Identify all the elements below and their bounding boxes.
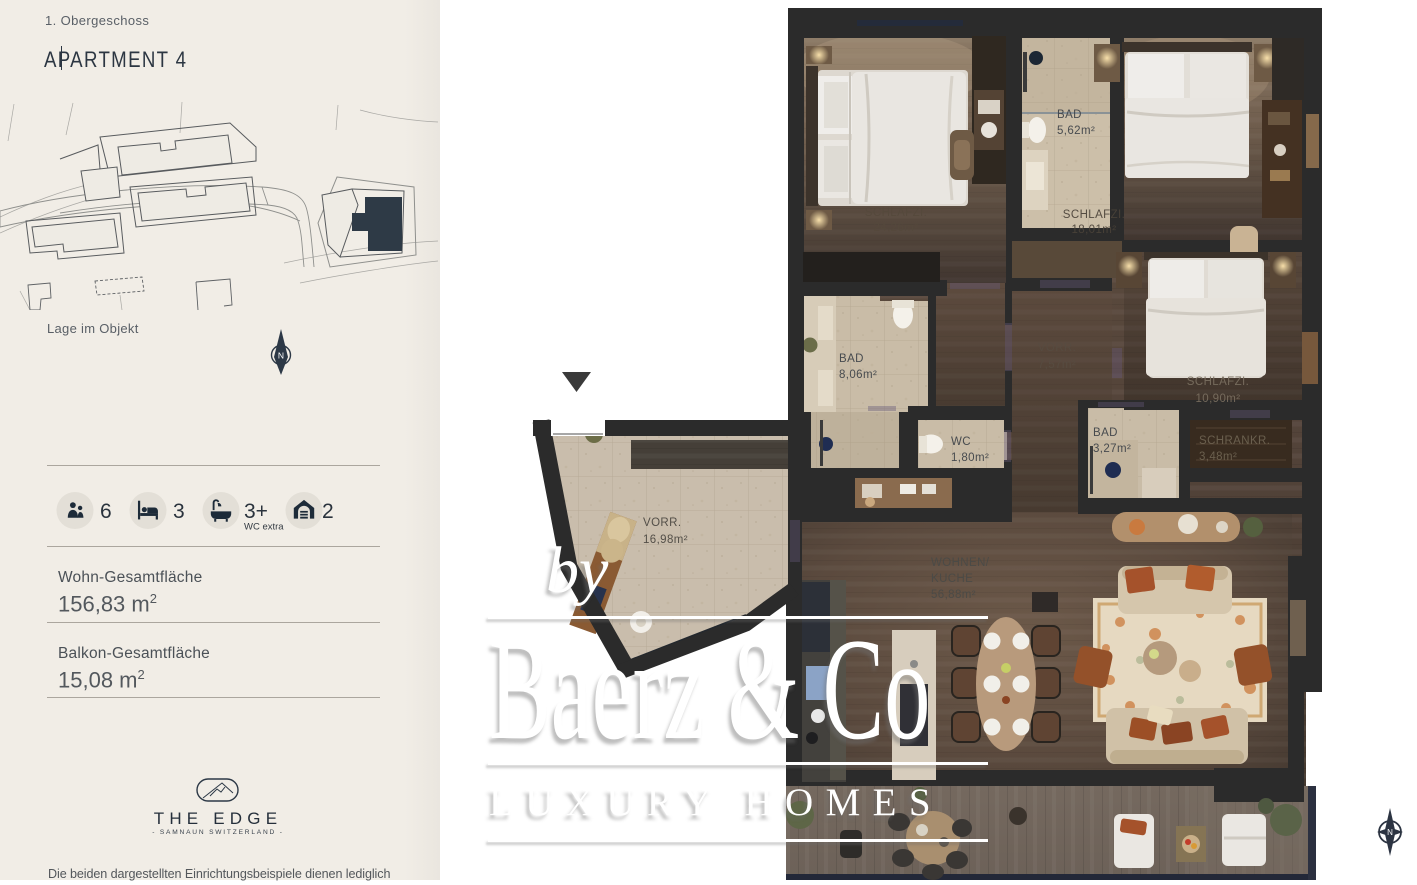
svg-text:5,62m²: 5,62m²	[1057, 125, 1095, 137]
svg-text:BAD: BAD	[1093, 427, 1118, 439]
svg-text:SCHLAFZI.: SCHLAFZI.	[865, 207, 927, 219]
svg-text:N: N	[278, 351, 284, 361]
svg-text:24,26m²: 24,26m²	[874, 222, 919, 234]
svg-text:N: N	[1387, 828, 1393, 837]
svg-text:3: 3	[173, 500, 185, 523]
svg-text:THE EDGE: THE EDGE	[154, 809, 283, 828]
svg-text:3,48m²: 3,48m²	[1199, 451, 1237, 463]
svg-text:SCHLAFZI.: SCHLAFZI.	[1187, 376, 1249, 388]
svg-text:SCHRANKR.: SCHRANKR.	[1199, 435, 1270, 447]
svg-text:VORR.: VORR.	[1038, 342, 1076, 354]
svg-text:10,90m²: 10,90m²	[1196, 393, 1241, 405]
svg-text:6: 6	[100, 500, 112, 523]
svg-text:WOHNEN/: WOHNEN/	[931, 557, 990, 569]
svg-text:WC extra: WC extra	[244, 522, 284, 533]
svg-text:WC: WC	[951, 436, 971, 448]
svg-text:3,27m²: 3,27m²	[1093, 443, 1131, 455]
svg-text:VORR.: VORR.	[643, 517, 681, 529]
svg-text:1,80m²: 1,80m²	[951, 452, 989, 464]
svg-text:BAD: BAD	[839, 353, 864, 365]
svg-text:16,98m²: 16,98m²	[643, 534, 688, 546]
svg-text:SCHLAFZI.: SCHLAFZI.	[1063, 209, 1125, 221]
svg-text:56,88m²: 56,88m²	[931, 589, 976, 601]
svg-text:BAD: BAD	[1057, 109, 1082, 121]
svg-text:- SAMNAUN SWITZERLAND -: - SAMNAUN SWITZERLAND -	[152, 829, 284, 836]
svg-text:KÜCHE: KÜCHE	[931, 573, 973, 585]
svg-text:8,06m²: 8,06m²	[839, 369, 877, 381]
svg-text:2: 2	[322, 500, 334, 523]
svg-text:3+: 3+	[244, 500, 268, 523]
svg-text:7,57m²: 7,57m²	[1038, 359, 1076, 371]
svg-text:18,01m²: 18,01m²	[1072, 224, 1117, 236]
